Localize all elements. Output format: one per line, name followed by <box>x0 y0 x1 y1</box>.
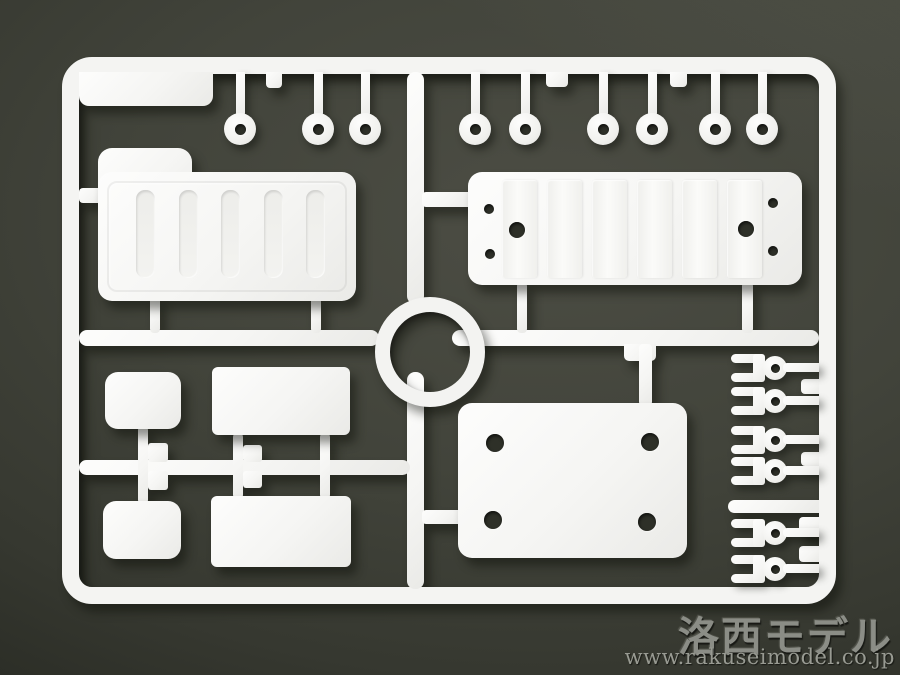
washer-part <box>587 113 619 145</box>
tray-groove <box>306 190 325 278</box>
fork-head-hole <box>771 529 780 538</box>
washer-gate-stem <box>361 72 370 117</box>
fork-clip-part <box>731 455 819 487</box>
top-rail-tab <box>266 72 282 88</box>
molding-label-tab <box>79 72 213 106</box>
gate-tray-bottom <box>311 297 321 333</box>
gate-tray-bottom <box>150 297 160 333</box>
washer-hole <box>647 124 658 135</box>
fork-gate-stem <box>783 466 819 475</box>
fork-head-hole <box>771 397 780 406</box>
fork-gate-stem <box>783 396 819 405</box>
panel-hole-large <box>738 221 754 237</box>
washer-hole <box>313 124 324 135</box>
fork-gate-stem <box>783 528 819 537</box>
fork-head-hole <box>771 436 780 445</box>
tray-groove <box>136 190 155 278</box>
gate-plates-mid <box>233 433 243 499</box>
washer-part <box>636 113 668 145</box>
gate-plates-right <box>320 433 330 499</box>
plate-hole <box>641 433 659 451</box>
photo-scene: 洛西モデル www.rakuseimodel.co.jp <box>0 0 900 675</box>
panel-rib <box>637 180 672 278</box>
tray-groove <box>264 190 283 278</box>
fork-gate-stem <box>783 564 819 573</box>
panel-rib <box>547 180 582 278</box>
fork-head-hole <box>771 364 780 373</box>
panel-hole-small <box>768 198 778 208</box>
washer-hole <box>360 124 371 135</box>
washer-gate-stem <box>758 72 767 117</box>
washer-part <box>302 113 334 145</box>
fork-clip-part <box>731 352 819 384</box>
plate-hole <box>484 511 502 529</box>
panel-hole-small <box>484 204 494 214</box>
panel-rib <box>592 180 627 278</box>
fork-head-hole <box>771 467 780 476</box>
washer-gate-stem <box>314 72 323 117</box>
washer-gate-stem <box>711 72 720 117</box>
washer-part <box>746 113 778 145</box>
fork-clip-part <box>731 517 819 549</box>
pad-body <box>103 501 181 559</box>
washer-hole <box>235 124 246 135</box>
watermark-url: www.rakuseimodel.co.jp <box>625 645 895 669</box>
top-rail-tab <box>546 72 568 87</box>
washer-part <box>509 113 541 145</box>
panel-hole-small <box>485 249 495 259</box>
washer-hole <box>520 124 531 135</box>
pad-body <box>105 372 181 429</box>
gate-panel-bottom <box>742 282 753 333</box>
washer-part <box>224 113 256 145</box>
plate-hole <box>486 434 504 452</box>
fork-clip-part <box>731 385 819 417</box>
gate-plate-top <box>639 344 652 406</box>
gate-panel-left <box>422 192 472 207</box>
rect-plate-body <box>212 367 350 435</box>
fork-head-hole <box>771 565 780 574</box>
washer-gate-stem <box>236 72 245 117</box>
fork-clip-part <box>731 424 819 456</box>
washer-gate-stem <box>521 72 530 117</box>
fork-gate-stem <box>783 435 819 444</box>
gate-plate-left <box>422 510 462 524</box>
washer-gate-stem <box>471 72 480 117</box>
fork-clip-part <box>731 553 819 585</box>
panel-hole-large <box>509 222 525 238</box>
washer-part <box>459 113 491 145</box>
washer-hole <box>757 124 768 135</box>
rect-plate-body <box>211 496 351 567</box>
panel-rib <box>682 180 717 278</box>
washer-hole <box>598 124 609 135</box>
washer-hole <box>710 124 721 135</box>
washer-hole <box>470 124 481 135</box>
small-square-part <box>148 471 168 490</box>
washer-gate-stem <box>648 72 657 117</box>
gate-pads <box>138 426 148 504</box>
tray-groove <box>221 190 240 278</box>
washer-part <box>349 113 381 145</box>
fork-gate-stem <box>783 363 819 372</box>
plate-body <box>458 403 687 558</box>
branch-runner <box>728 500 819 513</box>
center-ring-junction <box>375 297 485 407</box>
small-square-part <box>243 445 262 462</box>
washer-gate-stem <box>599 72 608 117</box>
small-square-part <box>243 471 262 488</box>
plate-hole <box>638 513 656 531</box>
runner-vertical-upper <box>407 72 424 304</box>
tray-groove <box>179 190 198 278</box>
panel-hole-small <box>768 246 778 256</box>
top-rail-tab <box>670 72 687 87</box>
washer-part <box>699 113 731 145</box>
gate-panel-bottom <box>517 282 527 333</box>
small-square-part <box>148 443 168 462</box>
runner-horizontal-left <box>79 330 379 346</box>
